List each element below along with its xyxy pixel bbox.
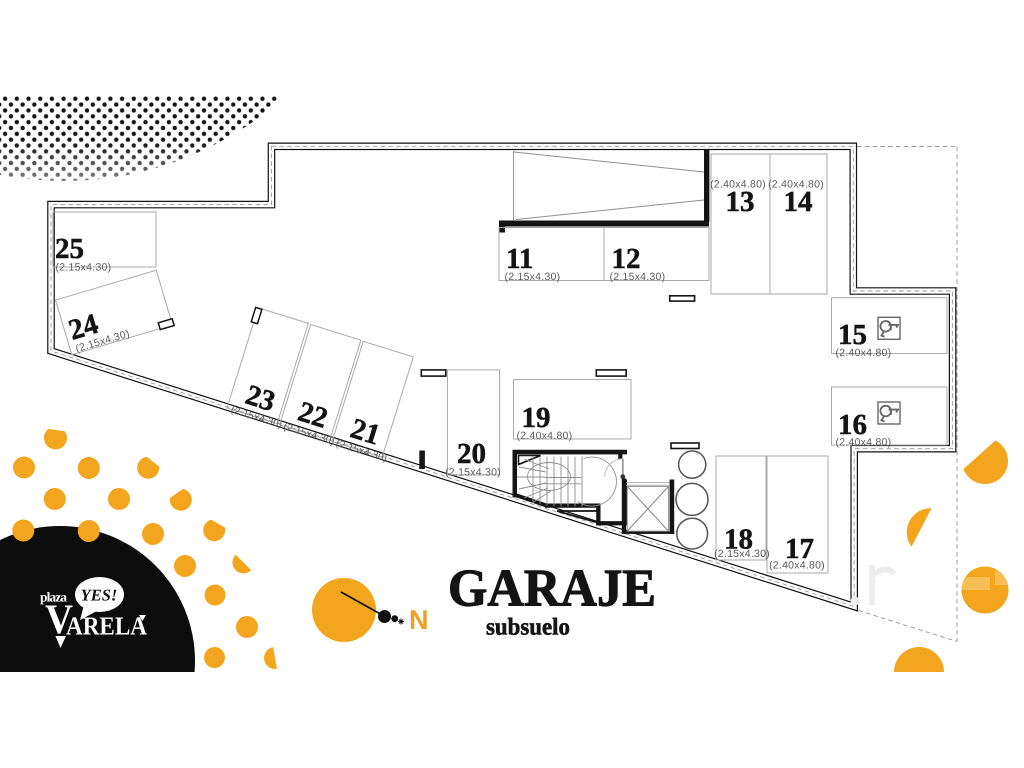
svg-text:(2.15x4.30): (2.15x4.30) [714,548,770,560]
svg-text:N: N [409,605,429,635]
svg-text:25: 25 [55,233,84,265]
svg-text:GARAJE: GARAJE [448,560,656,618]
svg-text:(2.15x4.30): (2.15x4.30) [445,467,501,479]
svg-text:(2.15x4.30): (2.15x4.30) [505,271,561,283]
svg-text:13: 13 [726,186,755,218]
svg-text:(2.15x4.30): (2.15x4.30) [610,271,666,283]
svg-text:(2.40x4.80): (2.40x4.80) [769,560,825,572]
svg-text:ARELA: ARELA [66,612,147,641]
svg-text:(2.40x4.80): (2.40x4.80) [836,347,892,359]
svg-text:14: 14 [784,186,813,218]
svg-text:(2.15x4.30): (2.15x4.30) [56,262,112,274]
svg-text:subsuelo: subsuelo [486,615,570,641]
svg-text:(2.40x4.80): (2.40x4.80) [836,437,892,449]
svg-text:YES!: YES! [81,586,118,605]
svg-text:(2.40x4.80): (2.40x4.80) [517,430,573,442]
svg-text:20: 20 [457,438,486,470]
